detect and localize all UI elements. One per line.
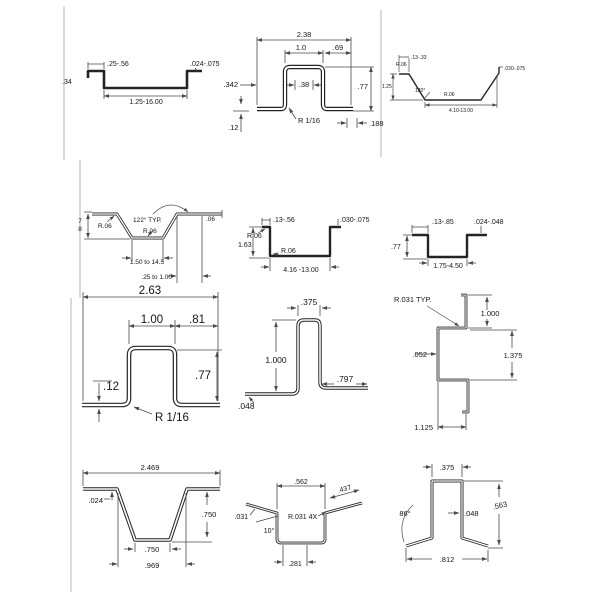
profile-path	[88, 71, 202, 88]
dim-label: .13-.85	[432, 219, 454, 226]
dim-label: 1.25-16.00	[129, 99, 163, 106]
dim-label: .750	[202, 510, 217, 519]
radius-leader-line	[289, 108, 296, 119]
drawing-vertical-z-channel: R.031 TYP. 1.000 .052 1.375 1.125	[394, 295, 522, 432]
radius-label: R.031 4X	[288, 514, 318, 521]
dim-label: .34	[62, 79, 72, 86]
fraction-denominator: 8	[78, 226, 82, 233]
dim-label: 2.469	[141, 463, 160, 472]
dim-label: 1.50 to 14.5	[130, 259, 165, 266]
drawing-tall-narrow-hat: .375 1.000 .797 .048	[238, 297, 368, 411]
drawing-hat-flared-feet: .375 86° .048 .563 .812	[399, 463, 508, 564]
radius-leader-line	[427, 306, 459, 326]
dim-line	[403, 225, 481, 266]
radius-leader-line	[107, 216, 114, 222]
dim-label: .048	[238, 401, 255, 411]
dim-label: .812	[440, 555, 455, 564]
radius-label: R.06	[281, 248, 296, 255]
drawings-canvas: .25-.56 .024-.075 .34 1.25-16.00 2.38 1.…	[0, 0, 600, 600]
dim-label: 1.0	[296, 43, 306, 52]
dim-label: 1.000	[481, 309, 500, 318]
dim-label: .06	[206, 216, 215, 223]
dim-label: .437	[337, 484, 352, 494]
dim-label: .77	[391, 244, 401, 251]
dim-label: .77	[195, 370, 211, 382]
dim-label: 1.125	[414, 423, 433, 432]
dim-label: .12	[103, 381, 119, 393]
dim-label: .024-.048	[474, 219, 504, 226]
dim-label: .188	[369, 119, 384, 128]
dim-label: .12	[228, 123, 238, 132]
dim-label: 1.75-4.50	[433, 263, 463, 270]
dim-line	[272, 305, 320, 320]
radius-label: R.06	[396, 62, 407, 68]
dim-label: .281	[288, 561, 302, 568]
dim-label: .031	[234, 514, 248, 521]
drawing-shallow-channel: .25-.56 .024-.075 .34 1.25-16.00	[62, 61, 220, 106]
dim-label: .375	[440, 463, 455, 472]
dim-label: .750	[145, 545, 160, 554]
dim-label: 1.25	[382, 84, 392, 90]
profile-path	[83, 489, 220, 540]
angle-label: 86°	[399, 509, 410, 518]
radius-label: R 1/16	[155, 412, 189, 424]
profile-path	[412, 235, 487, 257]
dim-label: .13-.33	[411, 55, 427, 61]
profile-inner-line	[83, 489, 220, 540]
dim-label: 4.16 -13.00	[283, 267, 319, 274]
dim-label: 1.63	[238, 242, 252, 249]
dim-label: 1.000	[265, 355, 287, 365]
dim-label: .030-.075	[340, 217, 370, 224]
dim-label: .030-.075	[504, 66, 525, 72]
drawing-small-channel: .13-.85 .024-.048 .77 1.75-4.50	[391, 219, 504, 270]
profile-inner-line	[438, 295, 468, 412]
angle-label: 122° TYP.	[133, 216, 162, 224]
dim-label: .797	[337, 374, 354, 384]
drawing-deep-trapezoid-channel: 2.469 .024 .750 .750 .969	[83, 463, 220, 570]
dim-label: 2.38	[297, 30, 312, 39]
drawing-wide-trapezoid-channel: 7 8 R.06 122° TYP. R.06 .06 1.50 to 14.5…	[78, 205, 222, 283]
dim-label: .77	[358, 82, 368, 91]
radius-label: R 1/16	[298, 116, 320, 125]
dim-label: .69	[333, 43, 343, 52]
profile-path	[262, 227, 341, 256]
dim-label: 2.63	[139, 285, 161, 297]
dim-label: .562	[294, 479, 308, 486]
dim-label: .342	[223, 80, 238, 89]
dim-label: .052	[412, 350, 427, 359]
drawing-open-trapezoid: .13-.33 R.06 1.25 120° R.06 .030-.075 4.…	[382, 55, 525, 114]
radius-label: R.06	[444, 92, 455, 98]
dim-label: .81	[189, 314, 205, 326]
dim-label: .13-.56	[273, 217, 295, 224]
profile-drawings-sheet: .25-.56 .024-.075 .34 1.25-16.00 2.38 1.…	[0, 0, 600, 600]
dim-label: .563	[492, 500, 508, 512]
drawing-large-hat-channel: 2.63 1.00 .81 .12 .77 R 1/16	[82, 285, 222, 424]
dim-label: .38	[299, 80, 309, 89]
radius-label: R.06	[98, 223, 112, 230]
radius-label: R.06	[143, 228, 157, 235]
profile-path	[438, 295, 468, 412]
dim-label: 4.10-13.00	[449, 108, 473, 114]
radius-label: R.031 TYP.	[394, 295, 432, 304]
page-edge-line	[64, 6, 381, 592]
dim-label: .25-.56	[107, 61, 129, 68]
angle-label: 10°	[264, 527, 275, 535]
dim-label: 1.00	[141, 314, 163, 326]
dim-label: .969	[145, 561, 160, 570]
dim-line	[250, 483, 325, 566]
dim-label: .048	[464, 509, 479, 518]
drawing-flared-channel: .562 .437 .031 10° R.031 4X .281	[234, 479, 362, 568]
angle-label: 120°	[415, 88, 425, 94]
dim-label: 1.375	[504, 351, 523, 360]
dim-label: .375	[301, 297, 318, 307]
drawing-channel-flanged: .13-.56 .030-.075 R.06 1.63 R.06 4.16 -1…	[238, 217, 370, 274]
radius-label: R.06	[247, 233, 262, 240]
dim-label: .25 to 1.00	[141, 274, 172, 281]
fraction-numerator: 7	[78, 218, 82, 225]
drawing-hat-with-feet: 2.38 1.0 .69 .342 .38 .77 R 1/16 .188 .1…	[223, 30, 383, 132]
dim-label: .024	[88, 496, 103, 505]
dim-label: .024-.075	[190, 61, 220, 68]
radius-leader-line	[134, 407, 152, 414]
